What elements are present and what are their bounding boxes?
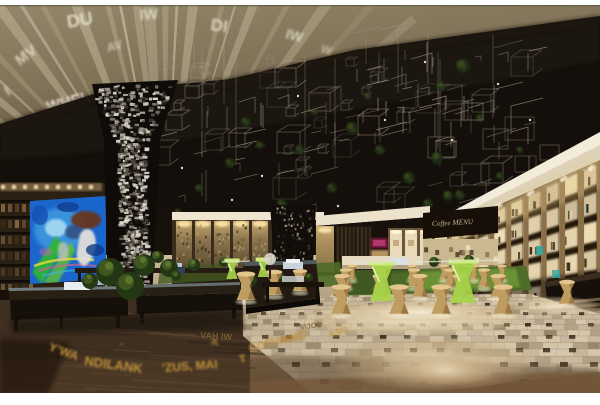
svg-text:DI: DI [209,15,229,36]
svg-text:ˇ: ˇ [120,343,123,352]
svg-text:IW: IW [139,6,159,24]
